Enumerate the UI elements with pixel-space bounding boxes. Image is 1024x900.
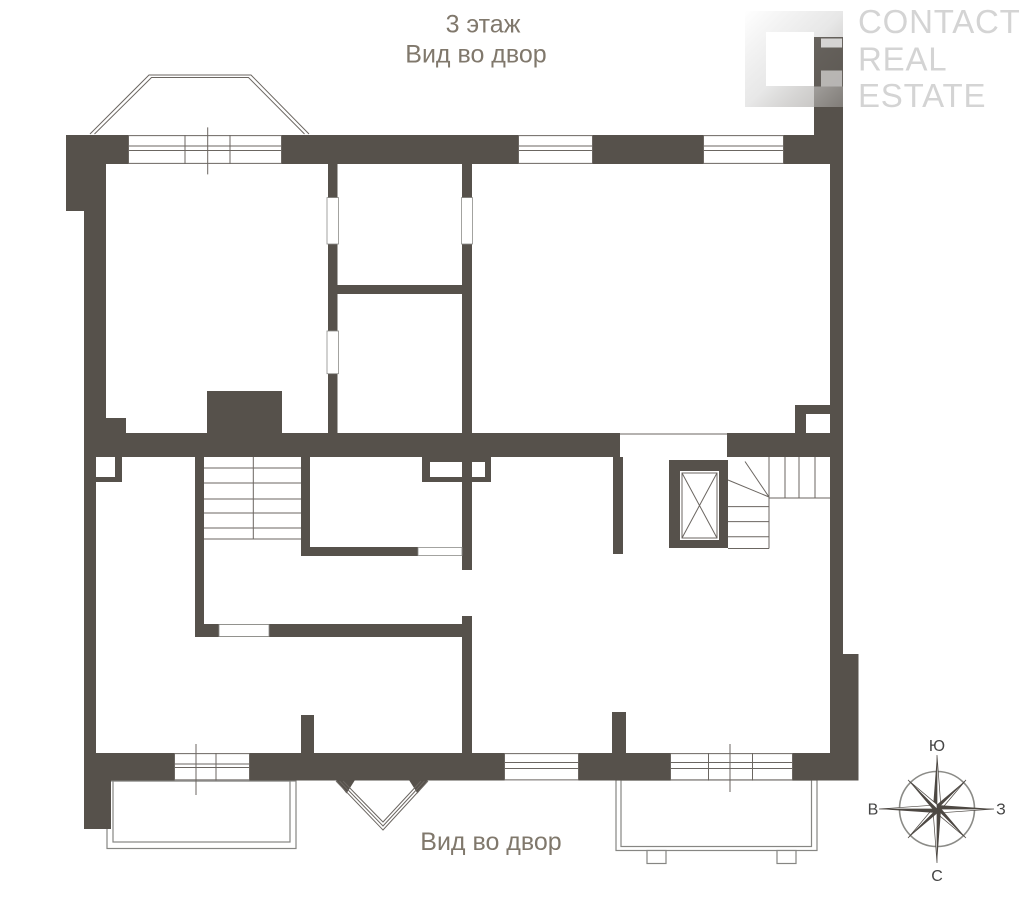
svg-text:REAL: REAL [858,41,947,78]
svg-text:CONTACT: CONTACT [858,3,1021,40]
svg-text:Ю: Ю [929,738,945,755]
svg-text:З: З [996,802,1006,819]
svg-text:В: В [868,802,879,819]
svg-text:3 этаж: 3 этаж [446,11,521,39]
svg-text:Вид во двор: Вид во двор [405,41,546,69]
svg-text:С: С [931,868,943,885]
svg-text:Вид во двор: Вид во двор [420,828,561,856]
svg-text:ESTATE: ESTATE [858,77,986,114]
